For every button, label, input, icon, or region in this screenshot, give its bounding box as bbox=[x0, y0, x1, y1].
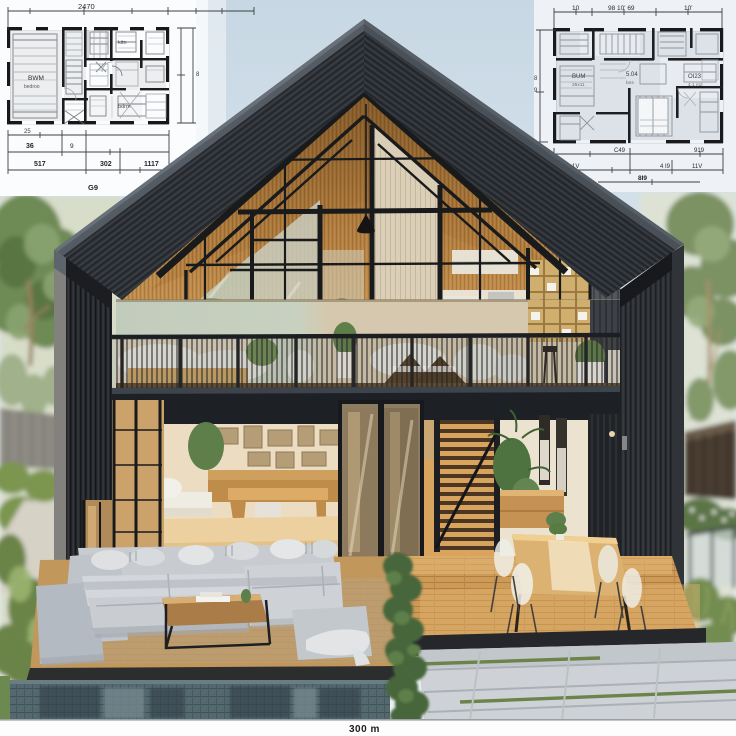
svg-text:bdrm: bdrm bbox=[118, 104, 131, 110]
svg-text:G9: G9 bbox=[88, 183, 98, 192]
svg-text:C49: C49 bbox=[614, 148, 626, 154]
svg-text:4.1 m2: 4.1 m2 bbox=[688, 82, 703, 88]
svg-text:BWM: BWM bbox=[28, 75, 44, 82]
svg-text:bedroo: bedroo bbox=[24, 84, 40, 90]
svg-text:11V: 11V bbox=[692, 164, 702, 170]
svg-text:36: 36 bbox=[26, 143, 34, 150]
svg-text:517: 517 bbox=[34, 161, 46, 168]
svg-text:98 10' 69: 98 10' 69 bbox=[608, 5, 635, 12]
svg-text:9: 9 bbox=[70, 143, 74, 150]
svg-text:25: 25 bbox=[24, 129, 31, 135]
svg-text:26x11: 26x11 bbox=[572, 82, 585, 88]
svg-text:BUM: BUM bbox=[572, 74, 585, 80]
svg-text:bns: bns bbox=[626, 80, 634, 86]
svg-text:10': 10' bbox=[684, 5, 692, 12]
svg-text:300 m: 300 m bbox=[349, 724, 380, 735]
svg-text:10: 10 bbox=[572, 5, 580, 12]
svg-text:302: 302 bbox=[100, 161, 112, 168]
svg-text:5.04: 5.04 bbox=[626, 72, 638, 78]
svg-text:8I9: 8I9 bbox=[638, 175, 647, 182]
svg-text:OI23: OI23 bbox=[688, 74, 702, 80]
svg-text:kitn: kitn bbox=[118, 40, 127, 46]
svg-text:919: 919 bbox=[694, 148, 705, 154]
svg-text:2470: 2470 bbox=[78, 2, 95, 11]
svg-text:4 I9: 4 I9 bbox=[660, 164, 671, 170]
svg-text:1117: 1117 bbox=[144, 161, 159, 168]
